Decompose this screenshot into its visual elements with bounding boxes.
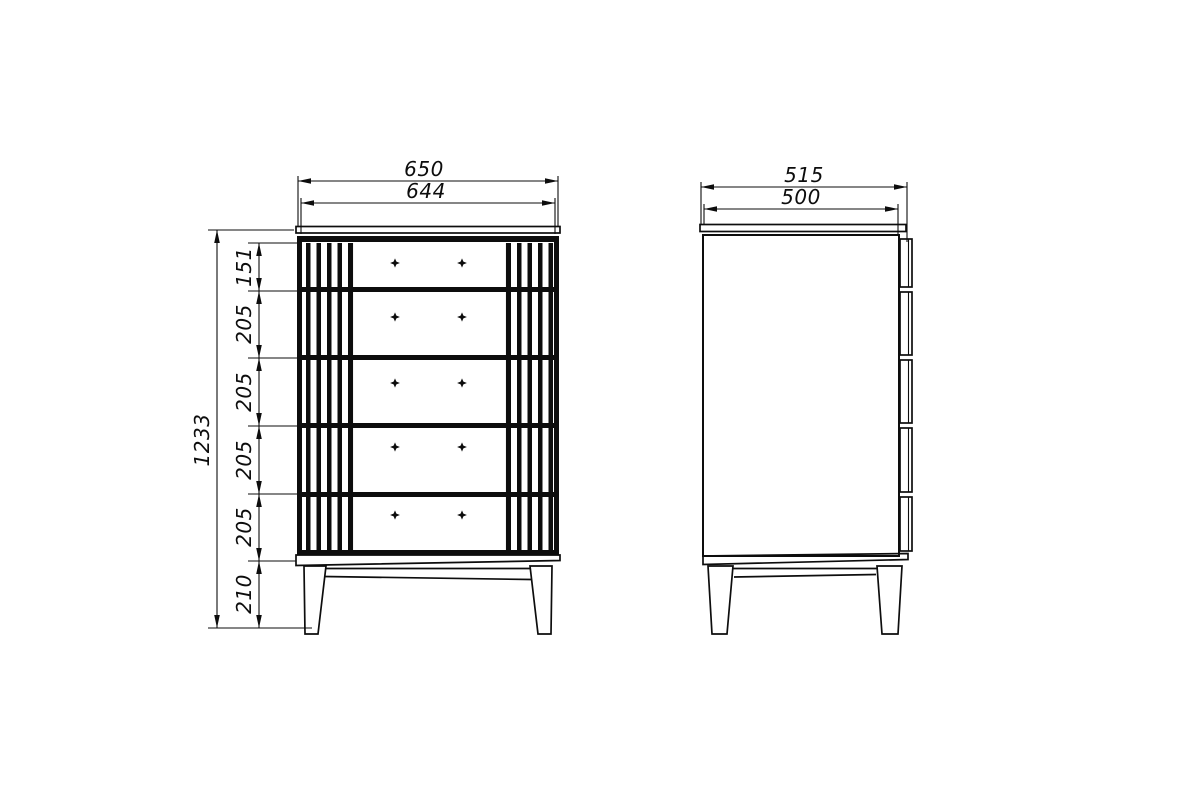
drawer-knob	[457, 378, 467, 387]
dim-depth-overall: 515	[701, 163, 907, 187]
front-view	[296, 227, 560, 635]
drawer-knob	[390, 442, 400, 451]
dim-segments: 151 205 205 205 205 210	[232, 243, 298, 628]
dim-label-205: 205	[232, 304, 256, 344]
drawer-knob	[457, 258, 467, 267]
side-drawer-edge	[900, 360, 912, 423]
dim-label-650: 650	[404, 157, 444, 181]
front-drawer-divider	[300, 287, 556, 292]
drawer-knob	[457, 442, 467, 451]
dim-label-210: 210	[232, 574, 256, 614]
dim-depth-carcass: 500	[704, 185, 898, 209]
side-drawer-edge	[900, 239, 912, 287]
side-top-board	[700, 225, 906, 232]
dimensions-front: 650 644 1233 151	[190, 157, 558, 628]
front-top-board	[296, 227, 560, 234]
dim-label-515: 515	[784, 163, 824, 187]
dim-label-500: 500	[781, 185, 821, 209]
dim-label-205: 205	[232, 507, 256, 547]
front-carcass-top-band	[297, 236, 559, 242]
dim-height-overall: 1233	[190, 230, 312, 628]
front-leg-right	[530, 566, 552, 634]
dim-width-carcass: 644	[301, 179, 555, 203]
drawing-canvas: 650 644 1233 151	[0, 0, 1200, 809]
dimensions-side: 515 500	[701, 163, 907, 242]
drawer-knob	[390, 258, 400, 267]
dim-width-overall: 650	[298, 157, 558, 181]
side-leg-back	[877, 566, 902, 634]
front-drawer-divider	[300, 423, 556, 428]
side-drawer-edges	[900, 239, 912, 551]
drawer-knob	[390, 510, 400, 519]
side-leg-front	[708, 566, 733, 634]
technical-drawing: 650 644 1233 151	[0, 0, 1200, 809]
front-leg-left	[304, 566, 326, 634]
dim-label-205: 205	[232, 440, 256, 480]
front-drawer-divider	[300, 355, 556, 360]
dim-label-151: 151	[232, 247, 256, 287]
side-drawer-edge	[900, 292, 912, 355]
front-apron-bottom-edge	[324, 577, 531, 580]
dim-label-205: 205	[232, 372, 256, 412]
drawer-knob	[390, 378, 400, 387]
side-drawer-edge	[900, 497, 912, 551]
drawer-knob	[457, 510, 467, 519]
dim-label-1233: 1233	[190, 414, 214, 467]
drawer-knob	[457, 312, 467, 321]
front-drawer-divider	[300, 492, 556, 497]
side-apron-bottom-edge	[734, 575, 876, 578]
front-bottom-board	[296, 555, 560, 566]
side-view	[700, 225, 912, 635]
dim-label-644: 644	[406, 179, 446, 203]
side-drawer-edge	[900, 428, 912, 492]
drawer-knob	[390, 312, 400, 321]
side-panel	[703, 235, 899, 556]
